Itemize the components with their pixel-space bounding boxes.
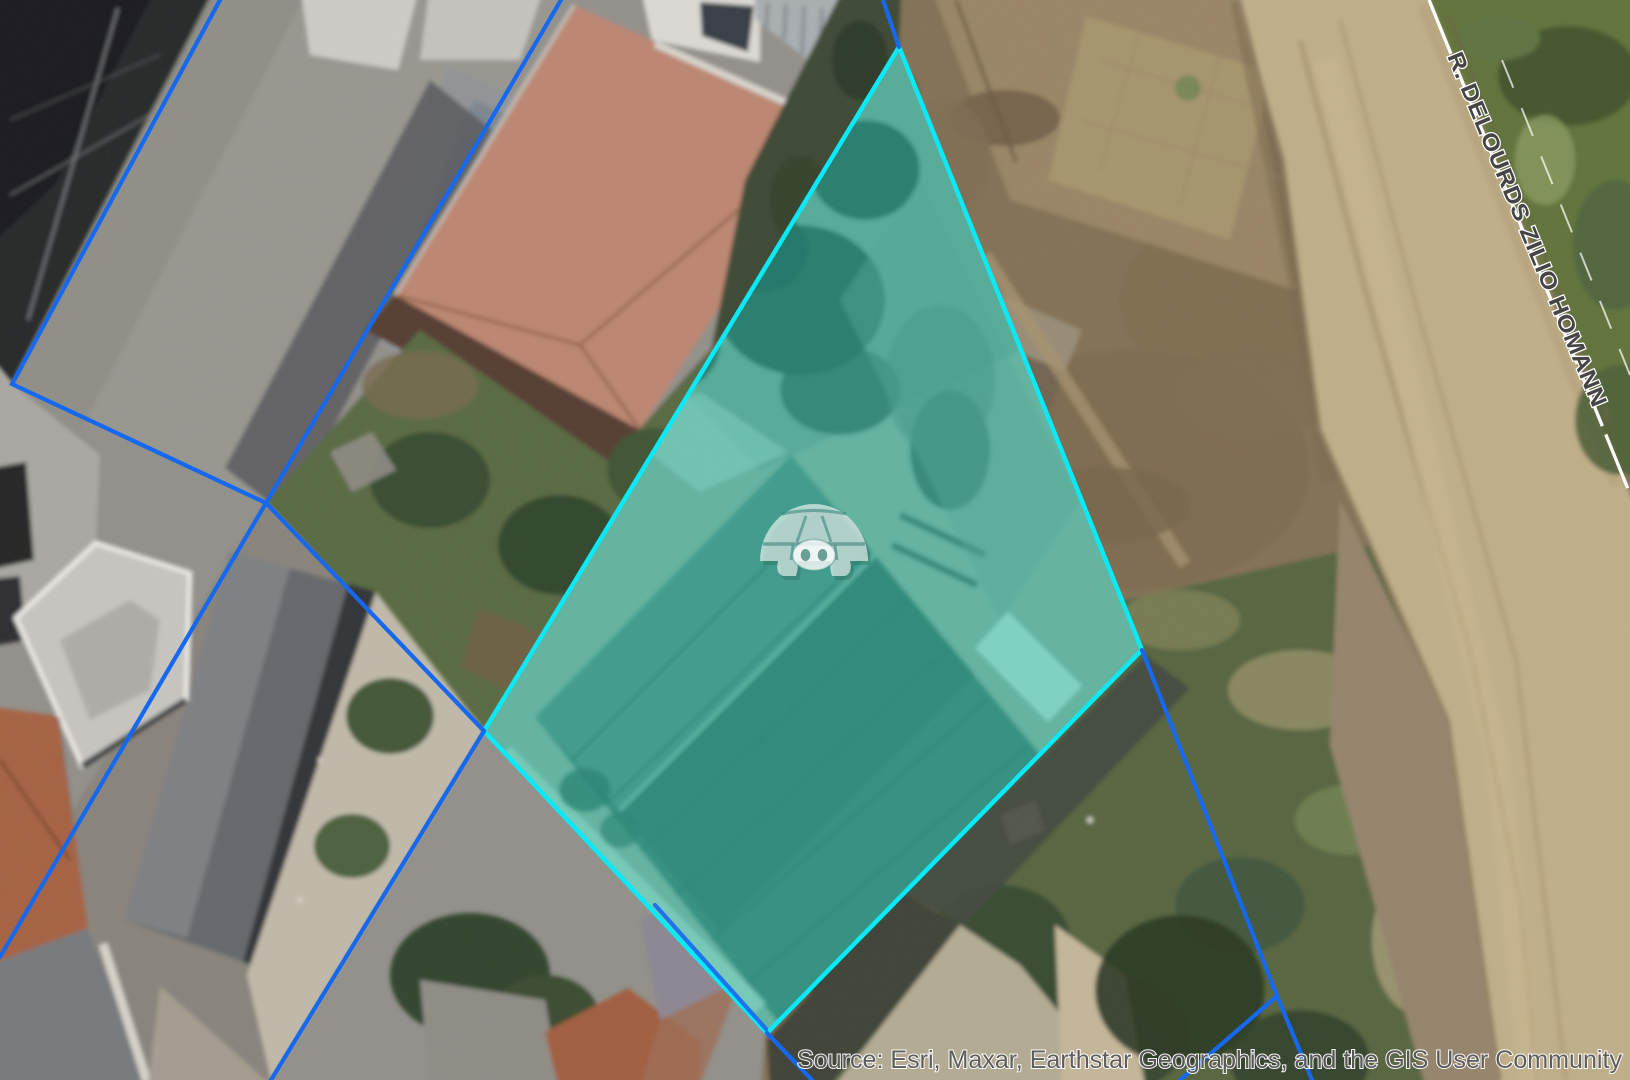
svg-text:Source: Esri, Maxar, Earthstar: Source: Esri, Maxar, Earthstar Geographi… [797, 1046, 1623, 1074]
